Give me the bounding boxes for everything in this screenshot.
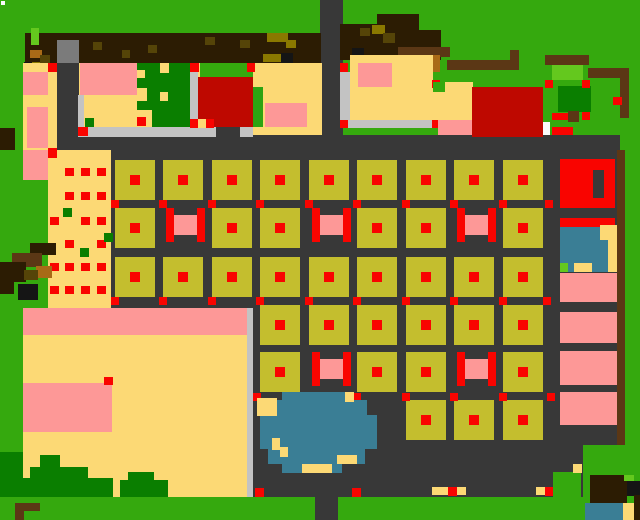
map-rect (104, 233, 113, 242)
map-rect (568, 111, 579, 122)
map-rect (433, 82, 445, 92)
map-rect (552, 127, 573, 135)
map-rect (36, 266, 52, 278)
map-rect (81, 263, 90, 271)
map-rect (227, 272, 237, 282)
map-rect (324, 272, 334, 282)
map-rect (320, 359, 343, 379)
map-rect (160, 63, 169, 73)
map-rect (560, 312, 617, 343)
map-rect (547, 445, 583, 453)
map-rect (240, 40, 250, 48)
map-rect (23, 150, 48, 180)
map-rect (469, 175, 479, 185)
map-rect (560, 263, 568, 272)
map-rect (582, 112, 590, 120)
map-rect (472, 87, 543, 137)
map-rect (518, 415, 528, 425)
map-rect (247, 63, 255, 72)
map-rect (166, 208, 174, 242)
map-rect (343, 208, 351, 242)
map-rect (560, 159, 615, 170)
map-rect (545, 80, 553, 88)
map-rect (263, 54, 281, 62)
map-rect (137, 70, 145, 78)
map-rect (543, 297, 551, 305)
map-rect (421, 320, 431, 330)
map-rect (582, 80, 590, 88)
map-rect (499, 393, 507, 401)
map-rect (560, 198, 615, 208)
map-rect (97, 192, 106, 200)
map-rect (343, 352, 351, 386)
map-rect (552, 65, 583, 80)
map-rect (130, 223, 140, 233)
map-rect (206, 119, 214, 128)
map-rect (81, 217, 90, 225)
map-rect (18, 284, 38, 300)
map-rect (286, 40, 296, 48)
map-rect (372, 272, 382, 282)
map-rect (545, 55, 589, 65)
map-rect (97, 263, 106, 271)
map-rect (312, 208, 320, 242)
map-rect (122, 50, 130, 58)
map-rect (104, 377, 113, 385)
map-rect (256, 297, 264, 305)
map-rect (624, 475, 634, 481)
map-rect (57, 63, 79, 137)
map-rect (553, 472, 581, 497)
map-rect (27, 107, 48, 148)
map-rect (0, 128, 15, 150)
map-rect (148, 45, 157, 53)
map-rect (48, 150, 57, 158)
map-rect (81, 286, 90, 294)
map-rect (0, 282, 14, 294)
map-rect (208, 200, 216, 208)
map-rect (324, 175, 334, 185)
map-rect (227, 175, 237, 185)
map-rect (510, 50, 519, 70)
map-rect (450, 393, 458, 401)
map-rect (275, 272, 285, 282)
map-rect (383, 33, 395, 43)
map-rect (178, 272, 188, 282)
map-rect (97, 168, 106, 176)
map-rect (623, 503, 634, 520)
map-rect (340, 63, 348, 72)
map-rect (469, 272, 479, 282)
map-rect (0, 452, 23, 497)
map-rect (402, 297, 410, 305)
map-rect (560, 170, 593, 198)
map-rect (190, 65, 198, 127)
map-rect (57, 40, 79, 63)
map-rect (97, 286, 106, 294)
map-rect (518, 367, 528, 377)
map-rect (448, 487, 457, 496)
map-rect (159, 200, 167, 208)
map-rect (267, 33, 288, 42)
map-rect (372, 367, 382, 377)
map-rect (197, 208, 205, 242)
map-rect (63, 208, 72, 217)
map-rect (15, 511, 24, 520)
map-rect (518, 272, 528, 282)
map-rect (23, 72, 48, 95)
map-rect (617, 150, 625, 445)
map-rect (130, 272, 140, 282)
map-rect (65, 192, 74, 200)
map-rect (457, 352, 465, 386)
map-rect (50, 286, 59, 294)
map-rect (205, 37, 215, 45)
map-rect (518, 320, 528, 330)
map-rect (358, 63, 392, 87)
map-rect (402, 393, 410, 401)
map-rect (372, 223, 382, 233)
map-rect (499, 297, 507, 305)
map-rect (65, 240, 74, 248)
map-rect (457, 487, 466, 495)
map-rect (280, 447, 288, 457)
map-rect (372, 175, 382, 185)
map-rect (421, 415, 431, 425)
map-rect (372, 320, 382, 330)
map-rect (353, 200, 361, 208)
map-rect (545, 200, 553, 208)
map-rect (65, 263, 74, 271)
map-rect (432, 487, 448, 495)
map-rect (0, 262, 26, 282)
map-rect (24, 270, 38, 280)
map-rect (340, 120, 348, 128)
map-rect (590, 475, 627, 503)
map-rect (353, 297, 361, 305)
map-rect (1, 1, 5, 5)
map-rect (421, 272, 431, 282)
map-rect (281, 53, 293, 63)
map-rect (81, 168, 90, 176)
map-rect (447, 60, 511, 70)
map-rect (560, 351, 617, 385)
map-rect (275, 367, 285, 377)
map-rect (137, 88, 147, 101)
map-rect (465, 359, 488, 379)
map-rect (465, 215, 488, 235)
game-map[interactable] (0, 0, 640, 520)
map-rect (324, 320, 334, 330)
map-rect (80, 127, 190, 137)
map-rect (536, 487, 545, 495)
map-rect (257, 398, 277, 416)
map-rect (160, 92, 168, 101)
map-rect (159, 297, 167, 305)
map-rect (272, 438, 280, 450)
map-rect (547, 393, 555, 401)
map-rect (620, 68, 629, 118)
map-rect (23, 383, 112, 432)
map-rect (50, 217, 59, 225)
map-rect (190, 63, 199, 72)
map-rect (518, 223, 528, 233)
map-rect (560, 392, 617, 425)
map-rect (23, 478, 113, 497)
map-rect (574, 263, 592, 272)
map-rect (111, 200, 119, 208)
map-rect (337, 455, 357, 464)
map-rect (469, 320, 479, 330)
map-rect (15, 503, 40, 511)
map-rect (265, 103, 307, 127)
map-rect (65, 286, 74, 294)
map-rect (275, 320, 285, 330)
map-rect (488, 352, 496, 386)
map-rect (40, 55, 50, 63)
map-rect (305, 200, 313, 208)
map-rect (137, 117, 146, 126)
map-rect (208, 297, 216, 305)
map-rect (31, 28, 39, 45)
map-rect (499, 200, 507, 208)
map-rect (558, 86, 591, 112)
map-rect (275, 175, 285, 185)
map-rect (402, 200, 410, 208)
map-rect (312, 352, 320, 386)
map-rect (190, 119, 198, 128)
map-rect (198, 119, 206, 128)
map-rect (438, 120, 472, 135)
map-rect (345, 392, 354, 402)
map-rect (585, 503, 623, 520)
map-rect (256, 200, 264, 208)
map-rect (352, 488, 361, 497)
map-rect (634, 495, 640, 520)
map-rect (613, 97, 622, 105)
map-rect (93, 42, 102, 50)
map-rect (253, 87, 263, 127)
map-rect (627, 481, 640, 496)
map-rect (216, 127, 240, 137)
map-rect (128, 472, 154, 482)
map-rect (320, 215, 343, 235)
map-rect (305, 297, 313, 305)
map-rect (315, 495, 338, 520)
map-rect (450, 297, 458, 305)
map-rect (421, 223, 431, 233)
map-rect (275, 223, 285, 233)
map-rect (518, 175, 528, 185)
map-rect (130, 175, 140, 185)
map-rect (469, 415, 479, 425)
map-rect (604, 170, 615, 198)
map-rect (178, 175, 188, 185)
map-rect (360, 28, 370, 36)
map-rect (85, 118, 94, 127)
map-rect (457, 208, 465, 242)
map-rect (174, 215, 197, 235)
map-rect (573, 464, 582, 473)
map-rect (80, 248, 89, 257)
map-rect (23, 308, 247, 335)
map-rect (488, 208, 496, 242)
map-rect (111, 297, 119, 305)
map-rect (227, 223, 237, 233)
map-rect (255, 488, 264, 497)
map-rect (560, 273, 617, 302)
map-rect (450, 200, 458, 208)
map-rect (340, 120, 433, 128)
map-rect (421, 367, 431, 377)
map-rect (97, 217, 106, 225)
map-rect (80, 63, 138, 95)
map-rect (78, 127, 88, 136)
map-rect (65, 168, 74, 176)
map-rect (302, 464, 332, 473)
map-rect (421, 175, 431, 185)
map-rect (120, 480, 168, 497)
map-rect (48, 63, 57, 72)
map-rect (81, 192, 90, 200)
map-rect (608, 238, 617, 272)
